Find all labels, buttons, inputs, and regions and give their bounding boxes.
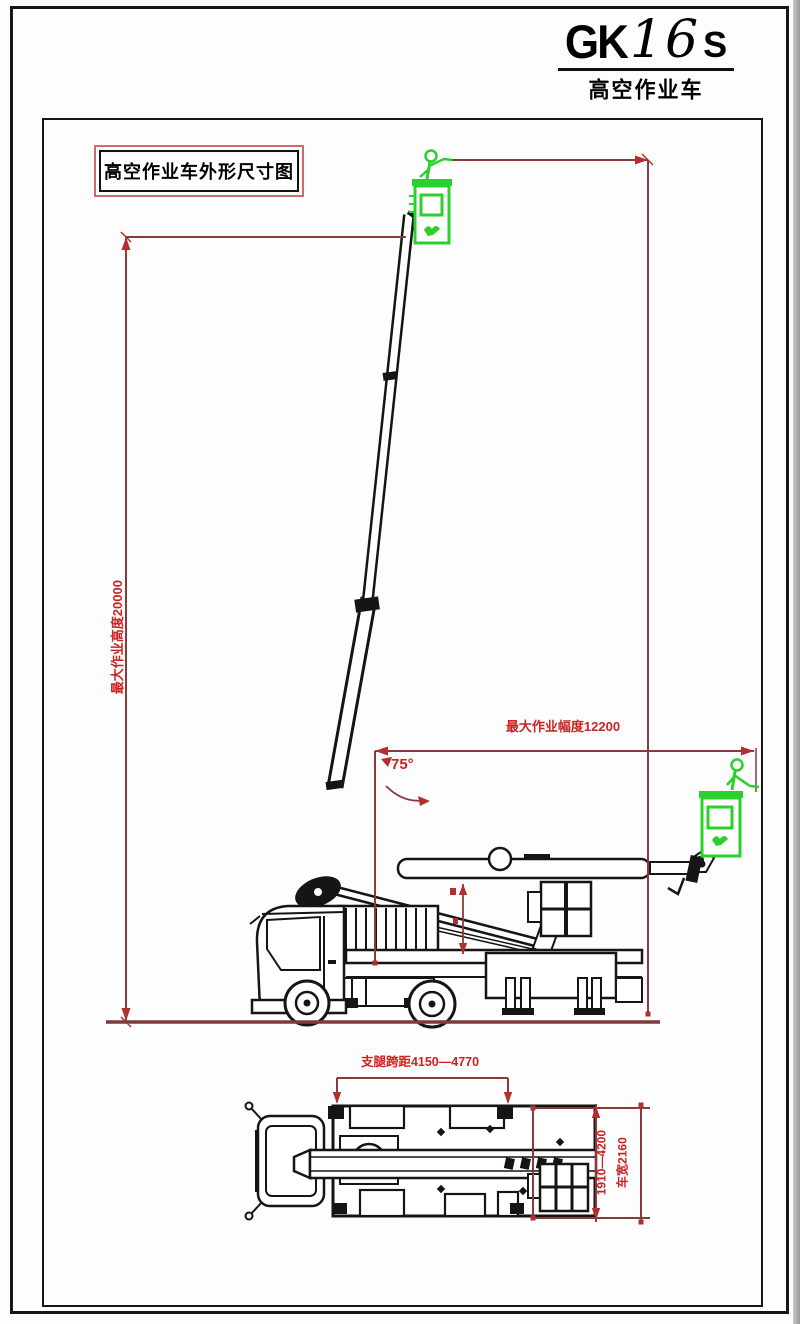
brand-suffix: S (703, 24, 727, 66)
drawing-title: 高空作业车外形尺寸图 (99, 150, 299, 192)
boom-angle-label: 75° (391, 756, 414, 773)
brand-logo: GK 16 S 高空作业车 (556, 14, 736, 104)
brand-gk: GK (565, 16, 627, 70)
drawing-title-box: 高空作业车外形尺寸图 (94, 145, 304, 197)
drawing-frame (42, 118, 763, 1307)
brand-model-row: GK 16 S (556, 14, 736, 68)
brand-subtitle: 高空作业车 (556, 73, 736, 105)
dim-vehicle-width-label: 车宽2160 (616, 1123, 629, 1203)
scan-edge-artifact (793, 0, 800, 1324)
dim-outrigger-lateral-label: 1910—4200 (595, 1115, 608, 1211)
dim-outrigger-span-label: 支腿跨距4150—4770 (345, 1056, 495, 1070)
drawing-sheet: GK 16 S 高空作业车 高空作业车外形尺寸图 (0, 0, 800, 1324)
dim-max-height-label: 最大作业高度20000 (111, 562, 125, 712)
brand-number: 16 (630, 14, 700, 66)
dim-max-radius-label: 最大作业幅度12200 (498, 720, 628, 734)
